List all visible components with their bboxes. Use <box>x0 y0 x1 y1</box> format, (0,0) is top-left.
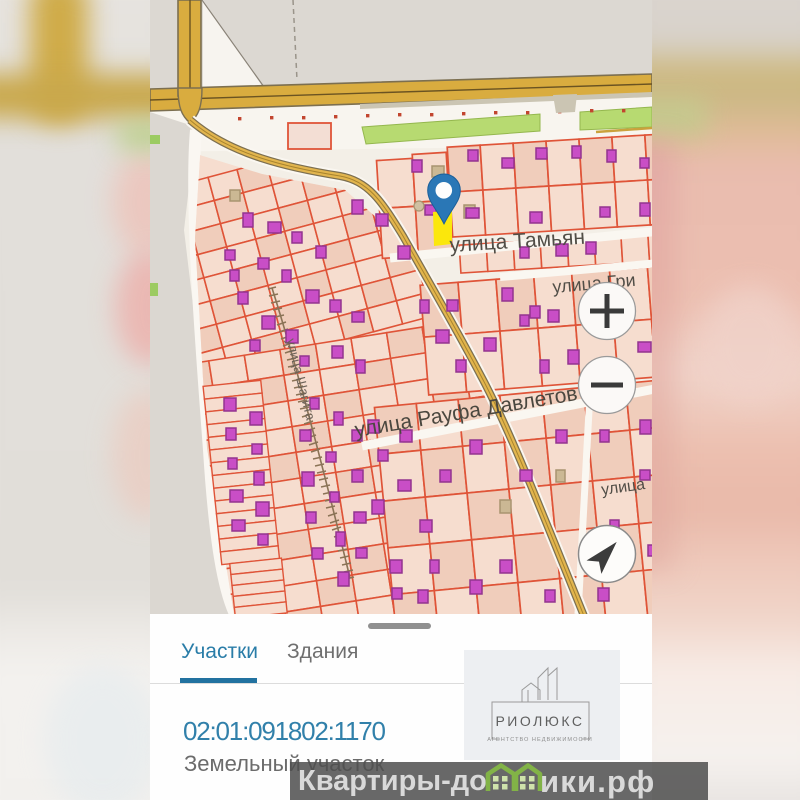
svg-text:АГЕНТСТВО НЕДВИЖИМОСТИ: АГЕНТСТВО НЕДВИЖИМОСТИ <box>487 737 592 743</box>
svg-text:РИОЛЮКС: РИОЛЮКС <box>495 713 584 729</box>
